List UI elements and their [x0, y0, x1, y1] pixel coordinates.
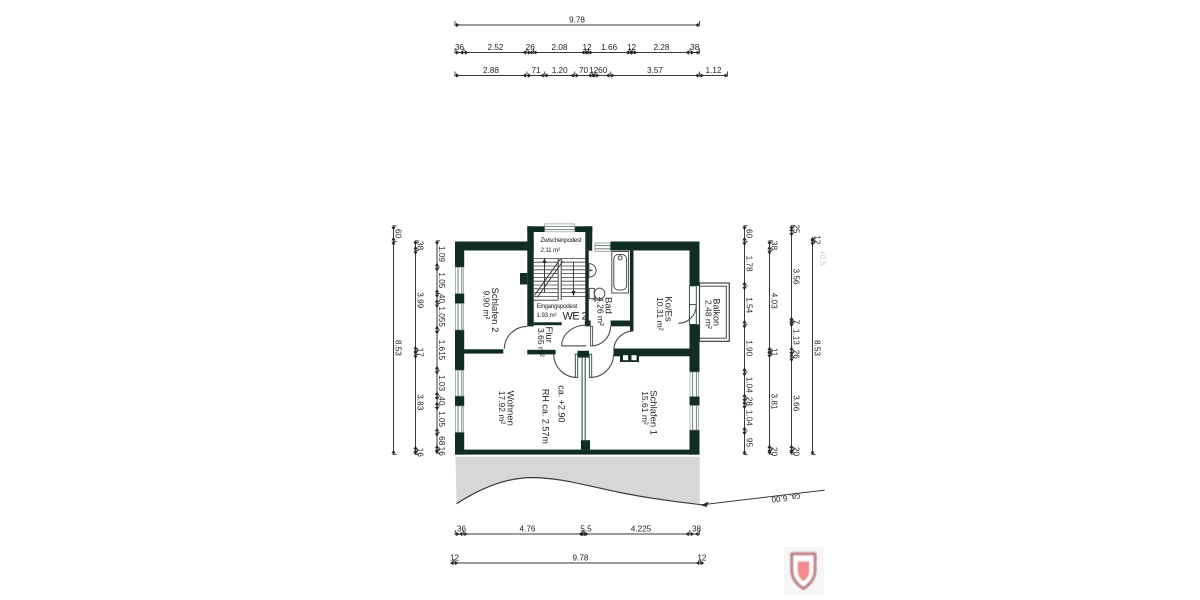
svg-text:1.05: 1.05: [437, 411, 446, 427]
svg-text:38: 38: [692, 525, 702, 534]
svg-text:4.03: 4.03: [770, 293, 779, 309]
svg-text:Eingangspodest: Eingangspodest: [537, 303, 578, 310]
svg-text:4.225: 4.225: [631, 525, 652, 534]
svg-text:71: 71: [531, 66, 541, 75]
svg-text:2.08: 2.08: [552, 43, 568, 52]
svg-text:20: 20: [770, 447, 779, 457]
svg-text:16: 16: [437, 447, 446, 457]
svg-text:26: 26: [792, 350, 801, 360]
svg-text:ca. +2.90: ca. +2.90: [557, 385, 567, 422]
svg-text:11: 11: [770, 348, 779, 357]
svg-text:1.66: 1.66: [601, 43, 617, 52]
svg-text:40: 40: [437, 396, 446, 406]
svg-text:26: 26: [526, 43, 536, 52]
svg-text:1.05: 1.05: [437, 272, 446, 288]
svg-text:16: 16: [416, 448, 425, 458]
svg-text:1.04: 1.04: [745, 410, 754, 426]
svg-text:60: 60: [394, 229, 403, 239]
svg-text:WE 2: WE 2: [563, 311, 588, 323]
svg-text:20: 20: [792, 447, 801, 457]
svg-text:36: 36: [457, 525, 467, 534]
svg-text:60: 60: [745, 229, 754, 239]
svg-text:1.12: 1.12: [706, 66, 722, 75]
svg-text:2.88: 2.88: [483, 66, 499, 75]
svg-text:1.03: 1.03: [437, 375, 446, 391]
svg-text:38: 38: [770, 241, 779, 251]
svg-text:+0.5: +0.5: [818, 250, 827, 266]
svg-text:12: 12: [627, 43, 637, 52]
svg-text:2.11 m²: 2.11 m²: [541, 247, 561, 254]
svg-text:3.56: 3.56: [792, 269, 801, 285]
svg-text:3.99: 3.99: [416, 292, 425, 308]
svg-text:2.52: 2.52: [488, 43, 504, 52]
svg-text:12: 12: [813, 235, 822, 245]
svg-text:17.92 m²: 17.92 m²: [497, 391, 507, 425]
svg-text:1.09: 1.09: [437, 246, 446, 262]
svg-text:4.26 m²: 4.26 m²: [596, 297, 606, 326]
svg-text:15.61 m²: 15.61 m²: [640, 391, 650, 425]
svg-text:28: 28: [745, 397, 754, 407]
svg-text:8.53: 8.53: [813, 340, 822, 356]
svg-text:68: 68: [437, 436, 446, 446]
svg-text:5.5: 5.5: [580, 525, 592, 534]
svg-text:3.57: 3.57: [647, 66, 663, 75]
svg-text:60: 60: [598, 66, 608, 75]
svg-text:3.66: 3.66: [792, 395, 801, 411]
svg-text:1.13: 1.13: [792, 329, 801, 345]
svg-text:3.83: 3.83: [416, 394, 425, 410]
svg-text:8.53: 8.53: [394, 340, 403, 356]
svg-text:70: 70: [579, 66, 589, 75]
svg-text:2.28: 2.28: [654, 43, 670, 52]
svg-text:36: 36: [455, 43, 465, 52]
svg-text:38: 38: [416, 241, 425, 251]
svg-text:12: 12: [450, 554, 460, 563]
svg-text:12: 12: [697, 554, 707, 563]
svg-text:2.48 m²: 2.48 m²: [704, 300, 714, 329]
svg-text:4.76: 4.76: [520, 525, 536, 534]
svg-text:7: 7: [792, 320, 801, 325]
svg-text:1.04: 1.04: [745, 377, 754, 393]
svg-text:3.65 m²: 3.65 m²: [536, 328, 546, 357]
svg-text:10.31 m²: 10.31 m²: [655, 297, 665, 331]
svg-text:17: 17: [416, 348, 425, 358]
svg-text:9.90 m²: 9.90 m²: [482, 291, 492, 320]
svg-text:1.78: 1.78: [745, 256, 754, 272]
svg-text:9.78: 9.78: [569, 16, 585, 25]
svg-text:1.90: 1.90: [745, 340, 754, 356]
svg-text:RH ca. 2.57m: RH ca. 2.57m: [541, 389, 551, 444]
svg-text:40: 40: [437, 294, 446, 304]
svg-text:12: 12: [582, 43, 592, 52]
svg-text:1.20: 1.20: [552, 66, 568, 75]
svg-text:25: 25: [792, 224, 801, 234]
svg-text:1.93 m²: 1.93 m²: [537, 312, 557, 319]
svg-text:3.81: 3.81: [770, 394, 779, 410]
svg-text:95: 95: [745, 438, 754, 448]
svg-text:Zwischenpodest: Zwischenpodest: [541, 237, 582, 244]
svg-text:9.78: 9.78: [573, 554, 589, 563]
svg-text:1.54: 1.54: [745, 297, 754, 313]
svg-text:38: 38: [690, 43, 700, 52]
svg-text:1.615: 1.615: [437, 340, 446, 361]
svg-text:1.055: 1.055: [437, 306, 446, 327]
